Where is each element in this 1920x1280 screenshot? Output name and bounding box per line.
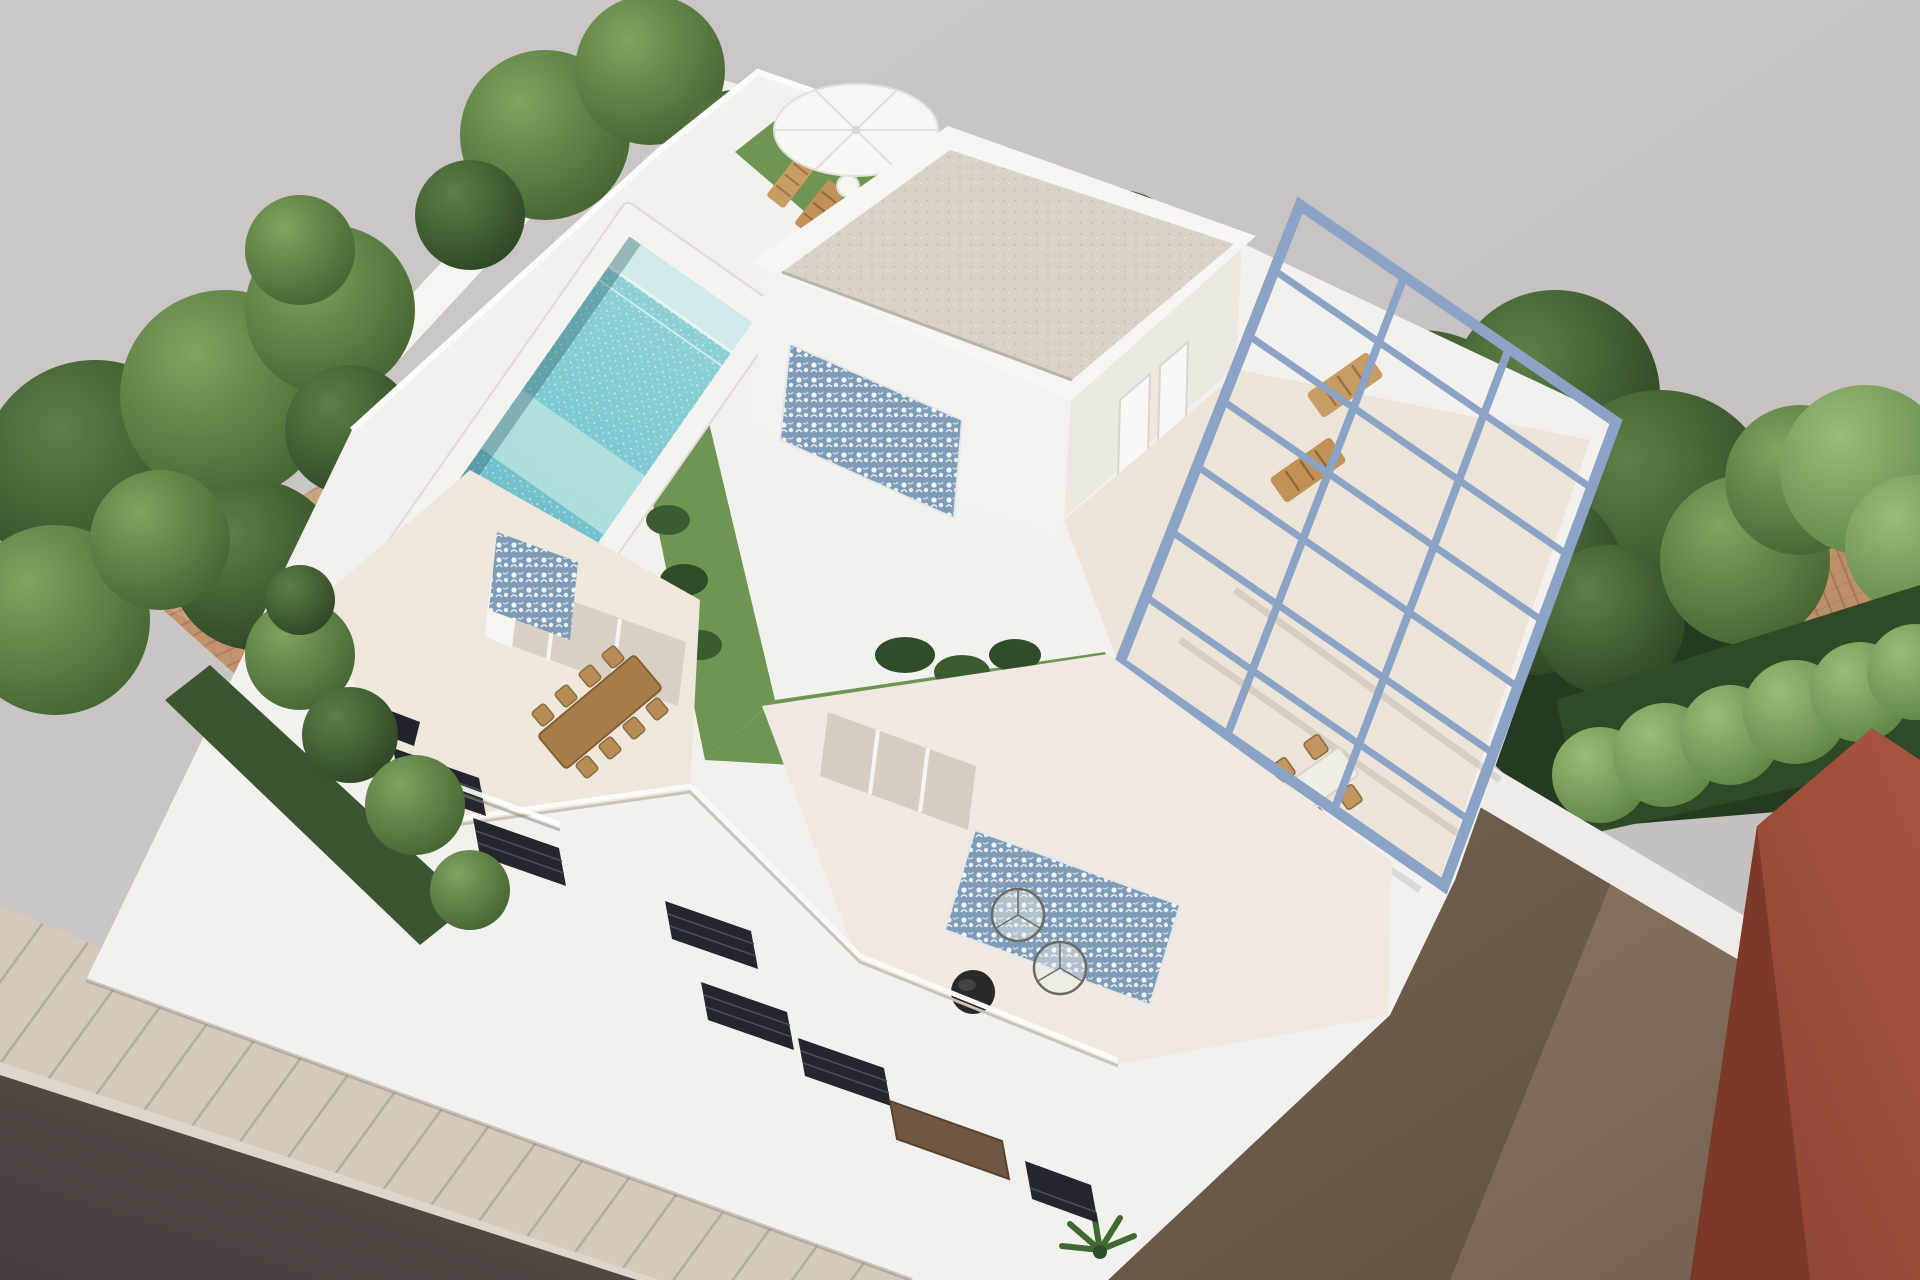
plant — [646, 505, 690, 535]
wire-lounge-chair — [1034, 942, 1086, 994]
bush — [265, 565, 335, 635]
tree-canopy — [415, 160, 525, 270]
tree-canopy — [245, 195, 355, 305]
table-highlight — [958, 979, 976, 991]
bush — [365, 755, 465, 855]
wire-lounge-chair — [992, 889, 1044, 941]
plant — [875, 637, 935, 673]
tree-canopy — [90, 470, 230, 610]
render-canvas — [0, 0, 1920, 1280]
bush — [430, 850, 510, 930]
architectural-render — [0, 0, 1920, 1280]
